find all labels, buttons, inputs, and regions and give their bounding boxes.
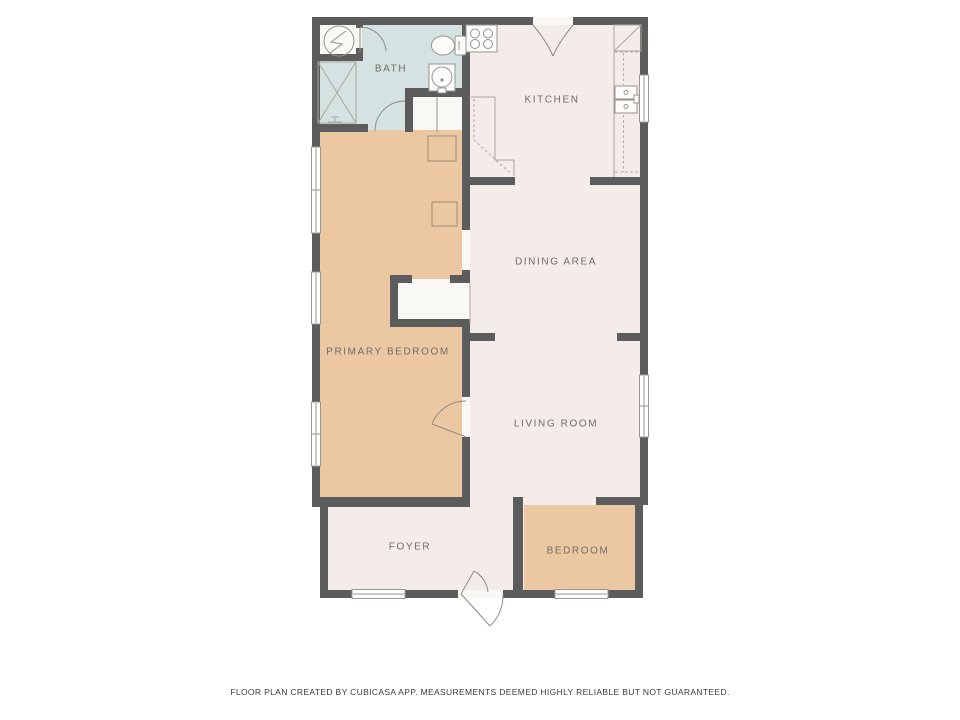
washbasin-icon: [429, 64, 455, 93]
wall-foyer-left: [320, 505, 328, 598]
wall-bath-bottom: [312, 124, 368, 132]
wall-closet-top-b: [450, 275, 470, 283]
wall-primary-bedroom-bottom: [312, 497, 470, 507]
toilet-icon: [432, 36, 467, 55]
room-label-foyer: FOYER: [389, 542, 431, 553]
wall-utility-closet-bottom: [316, 54, 362, 61]
floor-plan-page: BATH KITCHEN DINING AREA PRIMARY BEDROOM…: [0, 0, 960, 720]
wall-kitchen-dining-right: [590, 177, 648, 185]
wall-dining-living-right: [617, 333, 648, 341]
room-label-bath: BATH: [375, 64, 407, 75]
kitchen-door-opening: [533, 17, 573, 25]
wall-bedroom-right: [635, 505, 643, 598]
window-icon: [312, 272, 321, 324]
room-label-dining-area: DINING AREA: [515, 257, 597, 268]
floor-fills: [316, 21, 648, 594]
entry-door-opening: [458, 590, 503, 598]
room-label-bedroom: BEDROOM: [547, 546, 610, 557]
room-label-kitchen: KITCHEN: [524, 95, 579, 106]
window-icon: [640, 375, 649, 437]
wall-bath-jog: [405, 92, 413, 132]
room-label-living-room: LIVING ROOM: [514, 419, 598, 430]
wall-bedroom-top: [596, 497, 648, 505]
bedroom-door-opening: [462, 397, 470, 437]
wall-central-4: [462, 437, 470, 501]
wall-closet-top-a: [390, 275, 412, 283]
wall-dining-living-left: [462, 333, 495, 341]
footer-disclaimer: FLOOR PLAN CREATED BY CUBICASA APP. MEAS…: [230, 687, 729, 697]
wall-foyer-bedroom-divider: [513, 497, 523, 590]
window-icon: [352, 590, 405, 599]
window-icon: [555, 590, 608, 599]
room-label-primary-bedroom: PRIMARY BEDROOM: [326, 347, 450, 358]
kitchen-sink-icon: [615, 86, 639, 113]
stove-burners-icon: [466, 25, 497, 52]
wall-kitchen-dining-left: [466, 177, 515, 185]
window-icon: [312, 402, 321, 466]
bedroom-dining-opening: [462, 230, 470, 270]
wall-closet-bottom: [390, 319, 470, 327]
floor-plan-canvas: [0, 0, 960, 720]
window-icon: [640, 75, 649, 122]
bedroom-closet-floor: [394, 279, 470, 323]
window-icon: [312, 147, 321, 233]
